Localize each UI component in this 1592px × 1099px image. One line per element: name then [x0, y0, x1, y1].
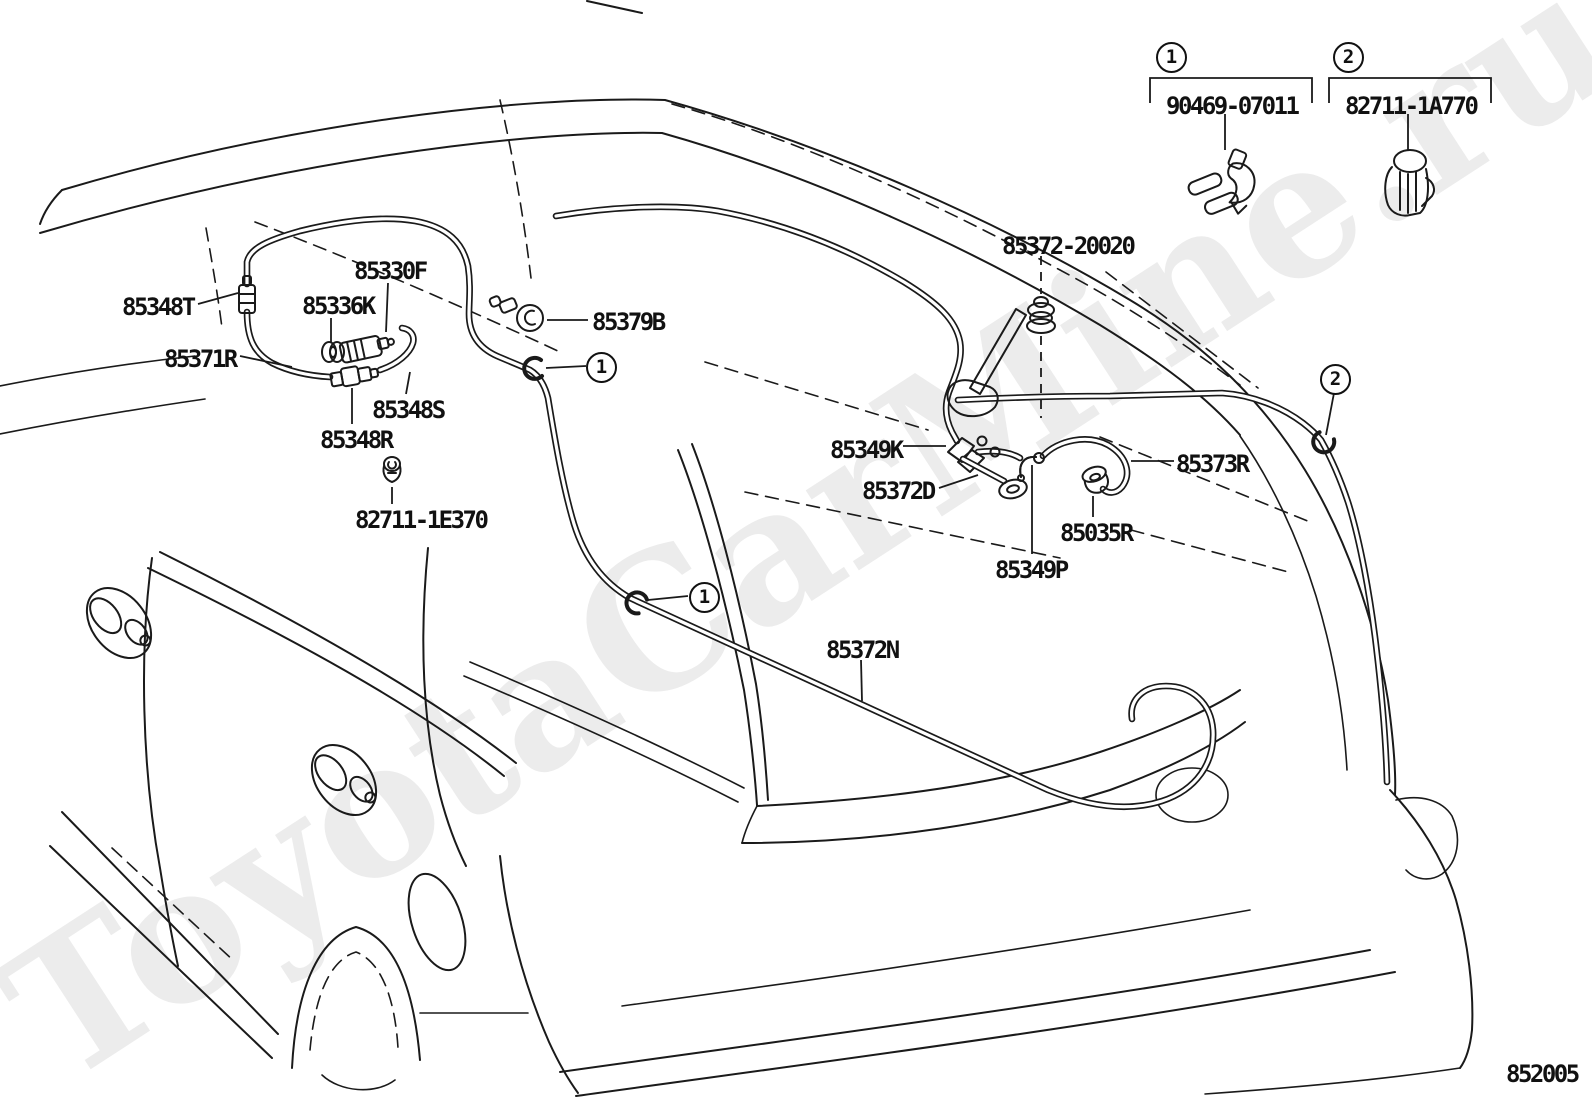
front-door-handle [74, 576, 165, 671]
diagram-code: 852005 [1506, 1060, 1578, 1088]
rear-door-handle [299, 733, 390, 828]
part-label-85035R[interactable]: 85035R [1060, 519, 1132, 547]
part-label-85372D[interactable]: 85372D [862, 477, 934, 505]
legend-part-number-82711-1A770[interactable]: 82711-1A770 [1345, 92, 1476, 120]
legend-ref-marker-1[interactable]: 1 [1156, 42, 1187, 73]
ref-marker-clip2[interactable]: 2 [1320, 364, 1351, 395]
part-label-85372-20020[interactable]: 85372-20020 [1002, 232, 1133, 260]
ref-marker-clip1[interactable]: 1 [689, 582, 720, 613]
hose-85373R [978, 439, 1127, 492]
part-label-85330F[interactable]: 85330F [354, 257, 426, 285]
clamp-90469-07011-icon [1183, 143, 1259, 222]
car-diagram [0, 0, 1592, 1099]
legend-part-number-90469-07011[interactable]: 90469-07011 [1166, 92, 1297, 120]
clip-82711-1E370-icon [383, 457, 400, 482]
roof-grommet-85372-20020 [1027, 297, 1055, 333]
part-label-85373R[interactable]: 85373R [1176, 450, 1248, 478]
part-label-85349P[interactable]: 85349P [995, 556, 1067, 584]
legend-ref-marker-2[interactable]: 2 [1333, 42, 1364, 73]
part-label-85348S[interactable]: 85348S [372, 396, 444, 424]
part-label-85349K[interactable]: 85349K [830, 436, 902, 464]
screw-grommet-85379B [489, 295, 543, 331]
part-label-85348T[interactable]: 85348T [122, 293, 194, 321]
check-valve-85330F [339, 332, 396, 363]
part-label-85379B[interactable]: 85379B [592, 308, 664, 336]
washer-hose-roof [556, 207, 1387, 782]
ref-marker-clip1[interactable]: 1 [586, 352, 617, 383]
parts-diagram-page: ToyotaCarMine.ru [0, 0, 1592, 1099]
car-body-line-art [0, 1, 1472, 1096]
part-label-85336K[interactable]: 85336K [302, 292, 374, 320]
part-label-82711-1E370[interactable]: 82711-1E370 [355, 506, 486, 534]
part-label-85372N[interactable]: 85372N [826, 636, 898, 664]
clip-82711-1A770-icon [1385, 150, 1434, 216]
part-label-85348R[interactable]: 85348R [320, 426, 392, 454]
part-label-85371R[interactable]: 85371R [164, 345, 236, 373]
hose-joint-85348R [330, 363, 379, 389]
